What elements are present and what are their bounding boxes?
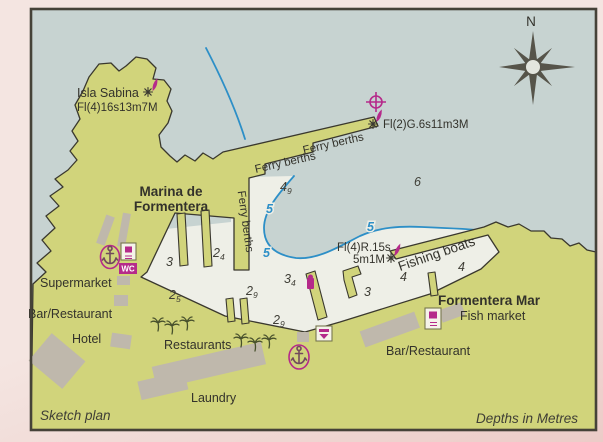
slipway-icon [316, 326, 332, 341]
bar-restaurant-east-label: Bar/Restaurant [386, 344, 471, 358]
contour-label-5: 5 [263, 246, 271, 260]
marina-pontoon [226, 298, 235, 322]
green-light-label: Fl(2)G.6s11m3M [383, 119, 468, 131]
fuel-station-icon [425, 308, 441, 329]
depths-in-metres-note: Depths in Metres [476, 411, 578, 426]
marina-pontoon [240, 298, 249, 324]
light-star-icon [144, 88, 153, 97]
light-star-icon [369, 120, 378, 129]
sketch-plan-note: Sketch plan [40, 408, 111, 423]
hotel-label: Hotel [72, 332, 101, 346]
contour-label-5: 5 [367, 220, 375, 234]
depth-label: 3 [364, 285, 371, 299]
fuel-station-icon [121, 243, 136, 260]
light-star-icon [387, 254, 396, 263]
supermarket-label: Supermarket [40, 276, 112, 290]
marina-name-line2: Formentera [134, 199, 209, 214]
laundry-label: Laundry [191, 391, 237, 405]
red-light-label: Fl(4)R.15s [337, 242, 391, 254]
fuel-pump-icon [307, 275, 314, 290]
wc-label: WC [121, 265, 135, 274]
depth-label: 4 [458, 260, 465, 274]
formentera-mar-label: Formentera Mar [438, 293, 541, 308]
building [117, 276, 130, 285]
marina-name-line1: Marina de [139, 184, 203, 199]
building [110, 333, 132, 350]
building [114, 295, 128, 306]
bar-restaurant-west-label: Bar/Restaurant [28, 307, 113, 321]
restaurants-label: Restaurants [164, 338, 231, 352]
isla-sabina-light-label: Fl(4)16s13m7M [77, 102, 158, 114]
depth-label: 6 [414, 175, 421, 189]
sketch-chart: WC N Isla Sabina Fl(4)16s13m7M Fl(2)G.6s… [0, 0, 603, 442]
compass-north-label: N [526, 14, 536, 29]
building [297, 332, 309, 342]
depth-label: 4 [400, 270, 407, 284]
depth-label: 3 [166, 255, 173, 269]
isla-sabina-label: Isla Sabina [77, 86, 139, 100]
fish-market-label: Fish market [460, 309, 526, 323]
wc-icon: WC [119, 263, 137, 274]
contour-label-5: 5 [266, 202, 274, 216]
red-light-range-label: 5m1M [353, 254, 385, 266]
